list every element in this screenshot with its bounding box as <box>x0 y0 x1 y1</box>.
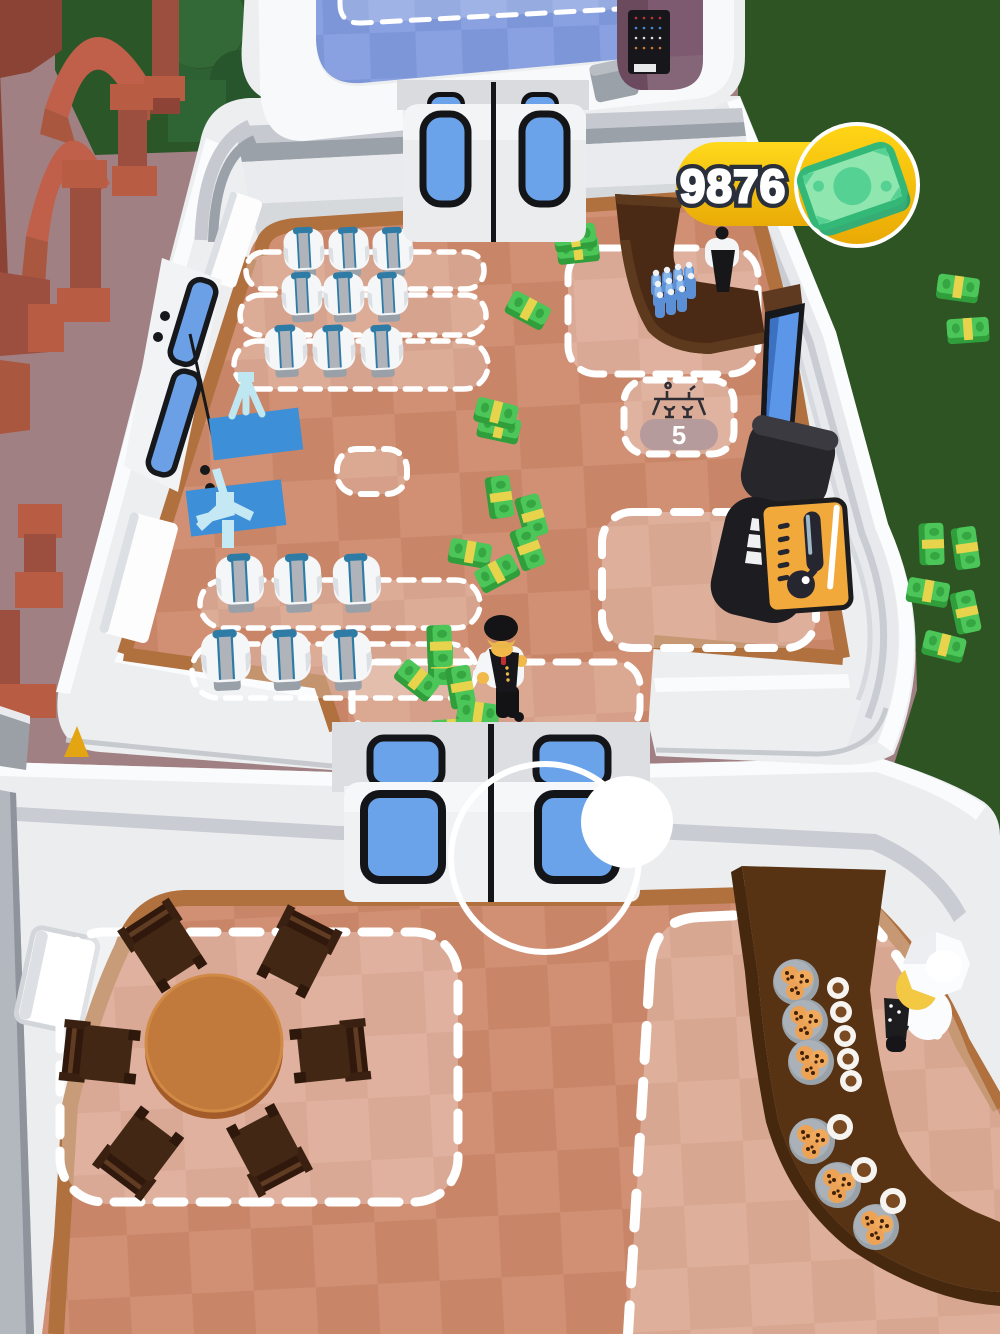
svg-text:5: 5 <box>672 420 686 450</box>
svg-text:9876: 9876 <box>680 160 786 212</box>
